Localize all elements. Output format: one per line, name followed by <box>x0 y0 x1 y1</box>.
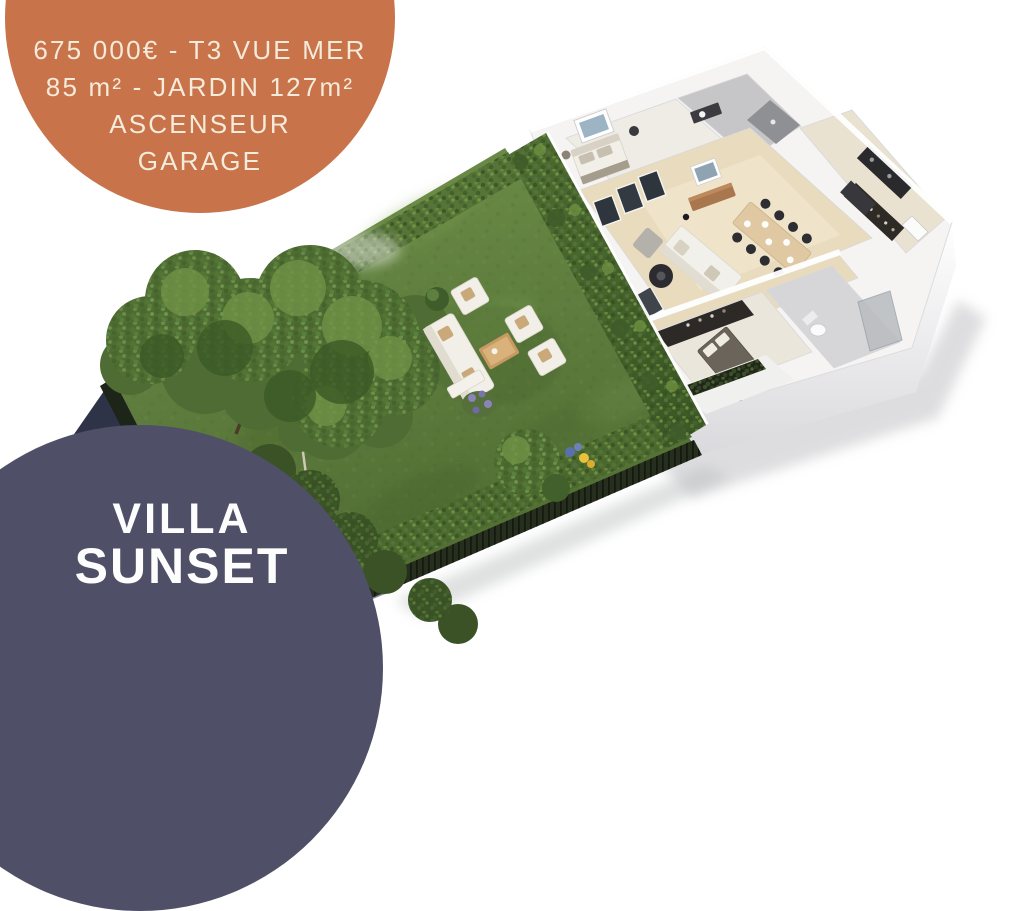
coffee-table-decor <box>657 272 666 281</box>
price-badge-text: 675 000€ - T3 VUE MER 85 m² - JARDIN 127… <box>5 32 395 180</box>
name-badge-text: VILLA SUNSET <box>75 496 290 589</box>
toilet <box>810 324 826 336</box>
garage-line: GARAGE <box>5 143 395 180</box>
sunset-label: SUNSET <box>75 543 290 589</box>
elevator-line: ASCENSEUR <box>5 106 395 143</box>
villa-label: VILLA <box>75 496 290 543</box>
floor-lamp <box>683 214 689 220</box>
shower-drain <box>771 120 776 125</box>
listing-visual: 675 000€ - T3 VUE MER 85 m² - JARDIN 127… <box>0 0 1025 650</box>
price-line: 675 000€ - T3 VUE MER <box>5 32 395 69</box>
nightstand <box>629 126 639 136</box>
surface-line: 85 m² - JARDIN 127m² <box>5 69 395 106</box>
